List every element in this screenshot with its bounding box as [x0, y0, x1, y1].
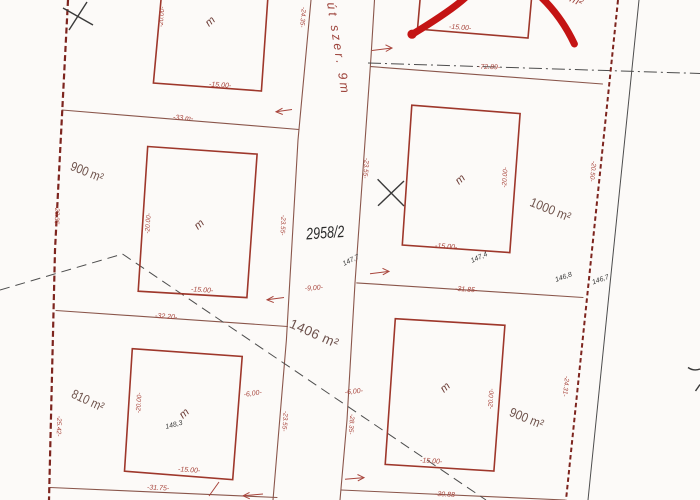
svg-text:-20.00-: -20.00- — [135, 392, 143, 414]
svg-text:-20.00-: -20.00- — [158, 6, 166, 28]
svg-text:-23.55-: -23.55- — [278, 215, 286, 237]
svg-text:-23.55-: -23.55- — [361, 158, 369, 180]
svg-text:2958/2: 2958/2 — [305, 223, 345, 244]
svg-text:-28.35-: -28.35- — [347, 414, 355, 436]
svg-text:-20.00-: -20.00- — [144, 212, 152, 234]
svg-text:-31.75-: -31.75- — [147, 484, 170, 492]
svg-text:-25.42-: -25.42- — [55, 416, 63, 438]
svg-text:-72.89-: -72.89- — [478, 64, 501, 72]
svg-text:-23.35-: -23.35- — [53, 206, 61, 228]
svg-text:-20.00-: -20.00- — [487, 388, 495, 410]
svg-text:-30.88-: -30.88- — [435, 491, 458, 499]
svg-text:-20.00-: -20.00- — [501, 166, 509, 188]
svg-text:-23.55-: -23.55- — [280, 411, 288, 433]
svg-text:-9,00-: -9,00- — [305, 284, 324, 292]
